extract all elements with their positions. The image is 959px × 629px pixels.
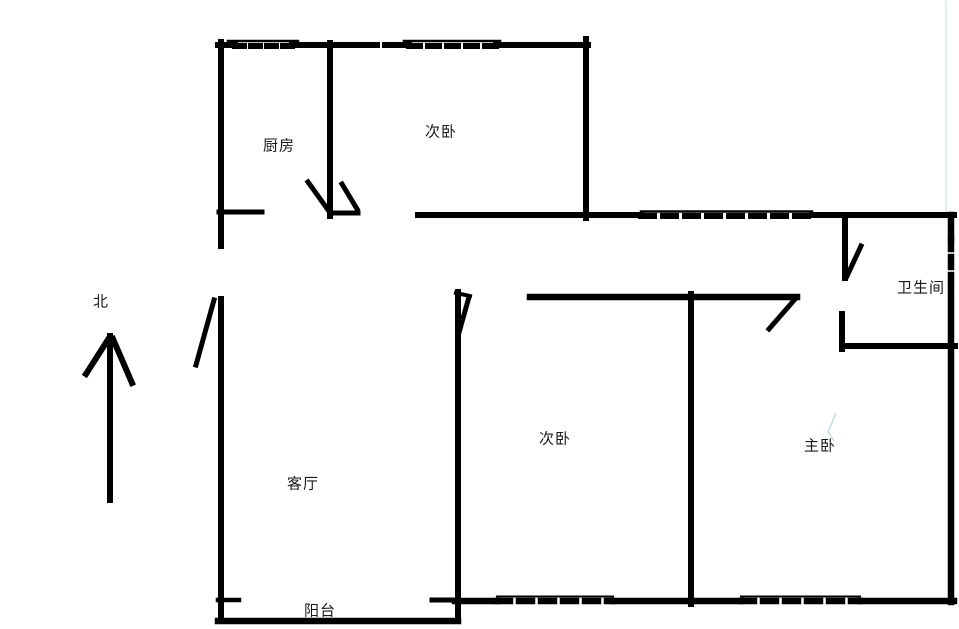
floor-plan-drawing <box>0 0 959 629</box>
room-label-master: 主卧 <box>804 435 836 456</box>
room-label-bathroom: 卫生间 <box>897 277 945 298</box>
room-label-kitchen: 厨房 <box>263 135 295 156</box>
room-label-bedroom-top: 次卧 <box>425 121 457 142</box>
room-label-balcony: 阳台 <box>304 600 336 621</box>
room-label-bedroom-mid: 次卧 <box>539 428 571 449</box>
room-label-living: 客厅 <box>287 473 319 494</box>
north-label: 北 <box>93 291 109 312</box>
floor-plan: 厨房 次卧 卫生间 北 客厅 次卧 主卧 阳台 <box>0 0 959 629</box>
bathroom-door-swing <box>847 246 861 276</box>
door-swings <box>196 182 861 365</box>
north-arrow <box>86 336 132 500</box>
master-door-swing <box>769 298 796 329</box>
entry-door-swing <box>196 300 214 365</box>
